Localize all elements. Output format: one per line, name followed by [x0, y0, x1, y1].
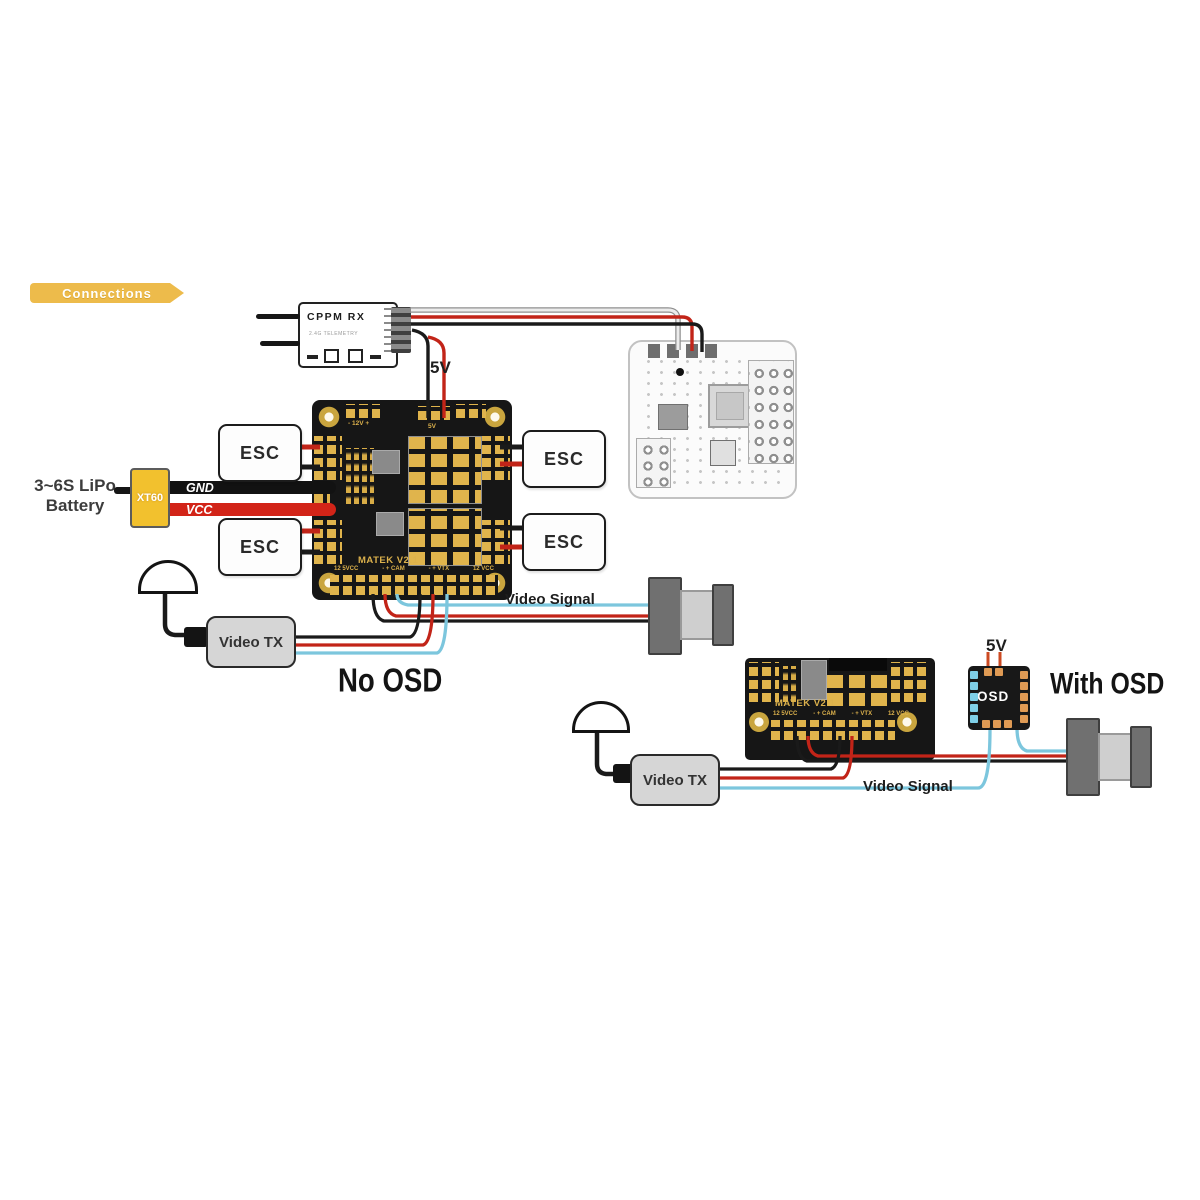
camera2-front — [1066, 718, 1100, 796]
wire-vtx2-ground — [714, 736, 840, 769]
cppm-rx-module: CPPM RX 2.4G TELEMETRY — [298, 302, 398, 368]
osd-pin — [970, 715, 978, 723]
wire-rx-fc-power — [406, 317, 692, 351]
esc-box-3: ESC — [522, 430, 606, 488]
osd-pin — [970, 704, 978, 712]
antenna1-connector — [184, 627, 208, 647]
connections-banner: Connections — [30, 283, 184, 303]
esc-box-4: ESC — [522, 513, 606, 571]
esc-box-2: ESC — [218, 518, 302, 576]
camera2-body — [1098, 733, 1132, 781]
gnd-bus-wire: GND — [162, 481, 336, 494]
rx-pad — [348, 349, 363, 363]
osd-pin — [984, 668, 992, 676]
wire-cam2-power — [808, 736, 1068, 756]
vcc-bus-wire: VCC — [162, 503, 336, 516]
rx-antenna-wire — [256, 314, 300, 319]
video-tx-label: Video TX — [219, 634, 283, 651]
camera1-front — [648, 577, 682, 655]
esc-label: ESC — [240, 537, 280, 558]
rx-title: CPPM RX — [307, 311, 365, 323]
video-tx-2: Video TX — [630, 754, 720, 806]
osd-pin — [982, 720, 990, 728]
osd-pin — [1020, 704, 1028, 712]
with-osd-heading: With OSD — [1050, 667, 1164, 701]
xt60-connector: XT60 — [130, 468, 170, 528]
osd-pin — [1020, 693, 1028, 701]
osd-pin — [1020, 671, 1028, 679]
osd-pin — [970, 671, 978, 679]
wiring-diagram: Connections - 12V + 5V MATEK V2.1 — [0, 0, 1200, 1200]
rx-subtitle: 2.4G TELEMETRY — [309, 331, 358, 337]
rx-pin-strip — [384, 308, 391, 352]
rx-antenna-wire — [260, 341, 300, 346]
osd-chip-label: OSD — [977, 689, 1009, 704]
esc-label: ESC — [240, 443, 280, 464]
wire-layer — [0, 0, 1200, 1200]
osd-pin — [970, 682, 978, 690]
rx-pad — [324, 349, 339, 363]
video-signal-label-2: Video Signal — [863, 778, 953, 795]
osd-pin — [995, 668, 1003, 676]
wire-rx-5v-ground — [412, 330, 428, 418]
osd-pin — [993, 720, 1001, 728]
esc-label: ESC — [544, 449, 584, 470]
camera1-back — [712, 584, 734, 646]
camera1-body — [680, 590, 714, 640]
osd-pin — [1020, 682, 1028, 690]
osd-pin — [1020, 715, 1028, 723]
battery-label: 3~6S LiPo Battery — [18, 476, 132, 516]
xt60-label: XT60 — [137, 492, 163, 504]
vcc-label: VCC — [186, 503, 212, 517]
rx-pad — [370, 355, 381, 359]
esc-label: ESC — [544, 532, 584, 553]
no-osd-heading: No OSD — [338, 663, 442, 700]
connections-banner-label: Connections — [62, 286, 152, 301]
rx-connector — [391, 307, 411, 353]
video-signal-label-1: Video Signal — [505, 591, 595, 608]
osd-module: OSD — [968, 666, 1030, 730]
camera2-back — [1130, 726, 1152, 788]
video-tx-1: Video TX — [206, 616, 296, 668]
wire-osd-video-in — [1017, 728, 1068, 751]
rx-5v-label: 5V — [430, 358, 451, 378]
osd-5v-label: 5V — [986, 636, 1007, 656]
osd-pin — [1004, 720, 1012, 728]
esc-box-1: ESC — [218, 424, 302, 482]
osd-pin — [970, 693, 978, 701]
video-tx-label: Video TX — [643, 772, 707, 789]
wire-rx-fc-ground — [406, 324, 702, 352]
rx-pad — [307, 355, 318, 359]
gnd-label: GND — [186, 481, 214, 495]
